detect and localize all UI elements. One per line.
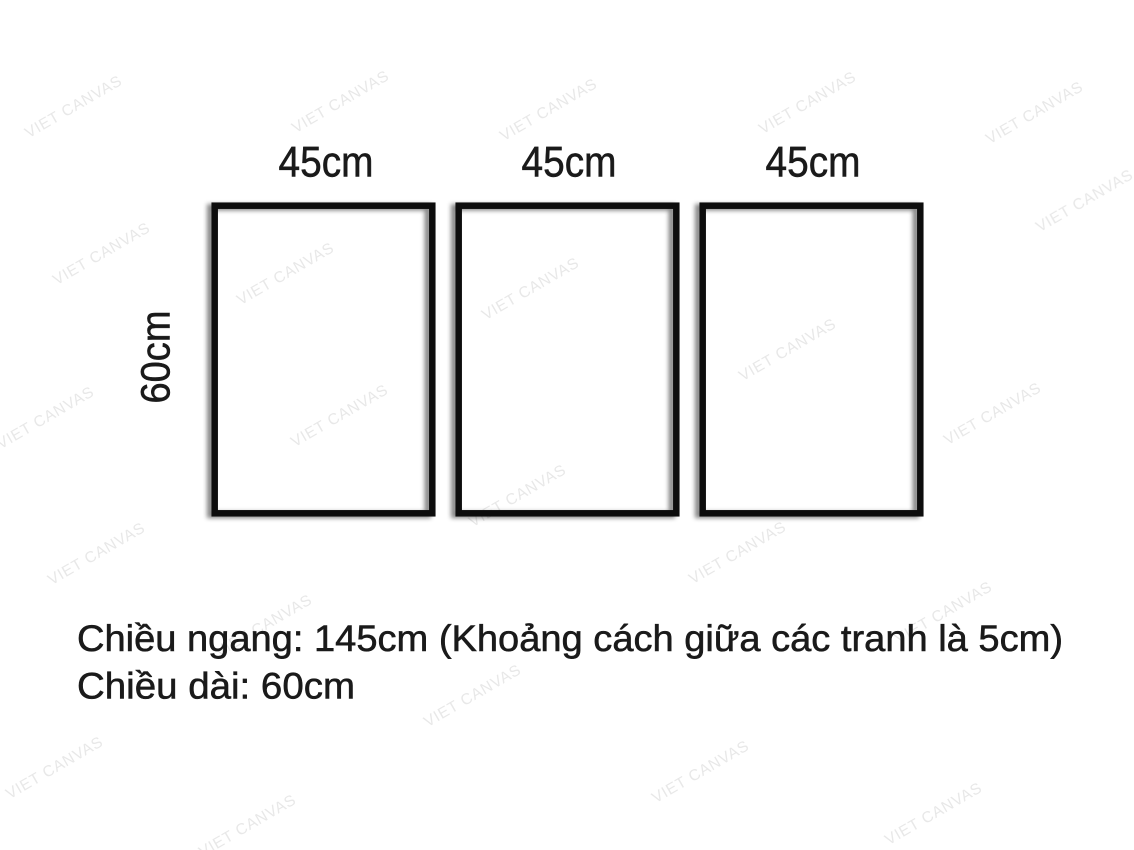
svg-text:VIET CANVAS: VIET CANVAS: [289, 67, 392, 136]
svg-text:VIET CANVAS: VIET CANVAS: [983, 78, 1086, 147]
svg-text:VIET CANVAS: VIET CANVAS: [3, 733, 106, 802]
svg-text:VIET CANVAS: VIET CANVAS: [649, 737, 752, 806]
svg-text:VIET CANVAS: VIET CANVAS: [1033, 166, 1134, 235]
svg-text:VIET CANVAS: VIET CANVAS: [941, 379, 1044, 448]
svg-text:VIET CANVAS: VIET CANVAS: [288, 381, 391, 450]
svg-text:VIET CANVAS: VIET CANVAS: [479, 254, 582, 323]
svg-text:Chiều dài: 60cm: Chiều dài: 60cm: [77, 666, 355, 707]
svg-text:VIET CANVAS: VIET CANVAS: [196, 791, 299, 850]
svg-text:VIET CANVAS: VIET CANVAS: [882, 779, 985, 848]
svg-text:VIET CANVAS: VIET CANVAS: [756, 68, 859, 137]
svg-text:VIET CANVAS: VIET CANVAS: [736, 315, 839, 384]
svg-text:VIET CANVAS: VIET CANVAS: [45, 519, 148, 588]
svg-text:VIET CANVAS: VIET CANVAS: [686, 518, 789, 587]
svg-text:VIET CANVAS: VIET CANVAS: [466, 461, 569, 530]
svg-text:60cm: 60cm: [133, 311, 179, 404]
svg-text:45cm: 45cm: [522, 139, 617, 187]
svg-text:VIET CANVAS: VIET CANVAS: [421, 661, 524, 730]
svg-text:VIET CANVAS: VIET CANVAS: [22, 72, 125, 141]
svg-text:45cm: 45cm: [766, 139, 861, 187]
svg-text:VIET CANVAS: VIET CANVAS: [497, 75, 600, 144]
svg-text:VIET CANVAS: VIET CANVAS: [234, 239, 337, 308]
svg-text:VIET CANVAS: VIET CANVAS: [50, 219, 153, 288]
svg-text:Chiều ngang: 145cm (Khoảng các: Chiều ngang: 145cm (Khoảng cách giữa các…: [77, 618, 1063, 659]
svg-text:45cm: 45cm: [279, 139, 374, 187]
svg-text:VIET CANVAS: VIET CANVAS: [0, 383, 97, 452]
